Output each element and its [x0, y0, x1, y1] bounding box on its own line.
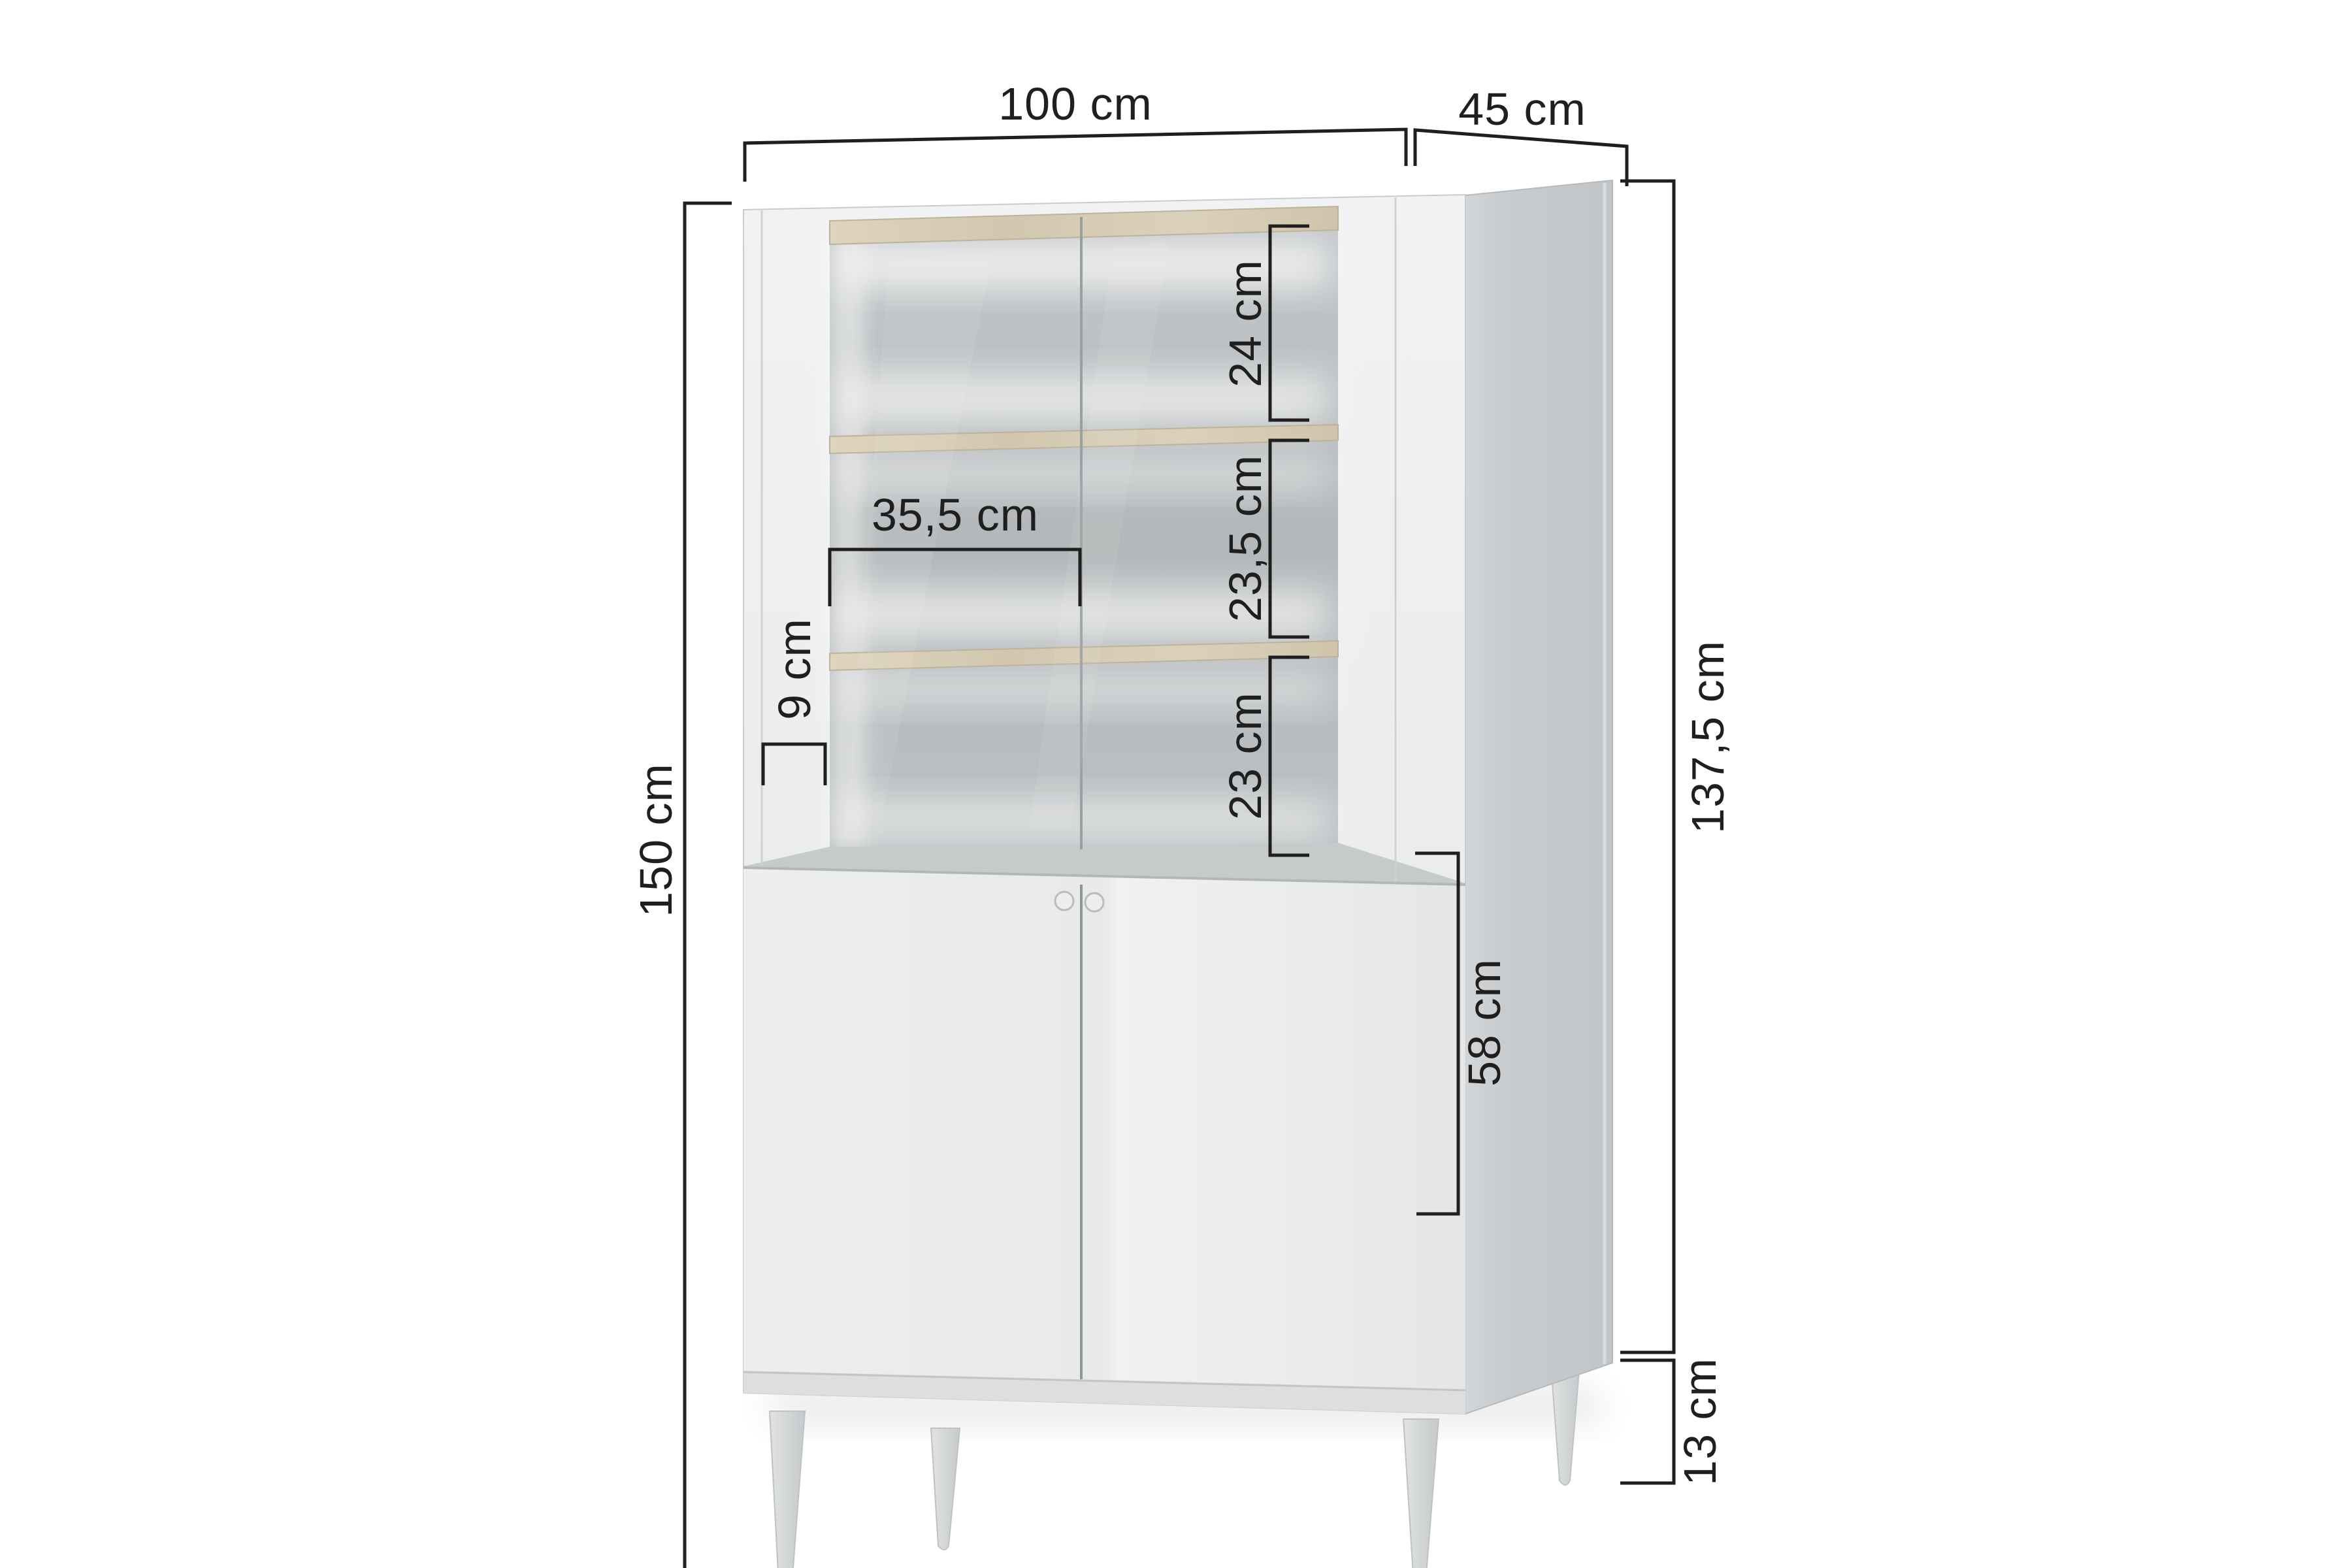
lower-cabinet-doors: [743, 866, 1465, 1414]
dim-label-frame-width: 9 cm: [769, 618, 820, 720]
cabinet-leg-rear-left: [931, 1428, 960, 1550]
dim-line-leg-height: [1620, 1360, 1674, 1483]
dim-line-depth: [1415, 130, 1627, 186]
dim-label-body-height: 137,5 cm: [1682, 640, 1733, 834]
cabinet-diagram-svg: 100 cm 45 cm 35,5 cm 150 cm 9 cm 24 cm 2…: [0, 0, 2352, 1568]
cabinet-leg-front-left: [770, 1411, 805, 1568]
dim-label-total-height: 150 cm: [630, 763, 681, 917]
door-knob-right: [1085, 893, 1103, 911]
dim-label-width: 100 cm: [998, 78, 1152, 129]
dim-label-top-shelf-space: 24 cm: [1220, 259, 1271, 387]
dim-line-width: [745, 129, 1406, 182]
dim-label-inner-width: 35,5 cm: [872, 489, 1039, 540]
dim-line-body-height: [1620, 181, 1674, 1352]
dimension-diagram: 100 cm 45 cm 35,5 cm 150 cm 9 cm 24 cm 2…: [0, 0, 2352, 1568]
dim-label-middle-shelf-space: 23,5 cm: [1220, 455, 1271, 622]
cabinet-leg-front-right: [1403, 1419, 1439, 1568]
dim-label-lower-cabinet: 58 cm: [1459, 958, 1510, 1086]
cabinet-illustration: [743, 180, 1612, 1568]
cabinet-side-panel: [1465, 180, 1612, 1414]
dim-label-depth: 45 cm: [1458, 84, 1586, 135]
dim-label-leg-height: 13 cm: [1674, 1358, 1725, 1486]
door-knob-left: [1055, 892, 1073, 910]
dim-label-bottom-shelf-space: 23 cm: [1220, 692, 1271, 820]
